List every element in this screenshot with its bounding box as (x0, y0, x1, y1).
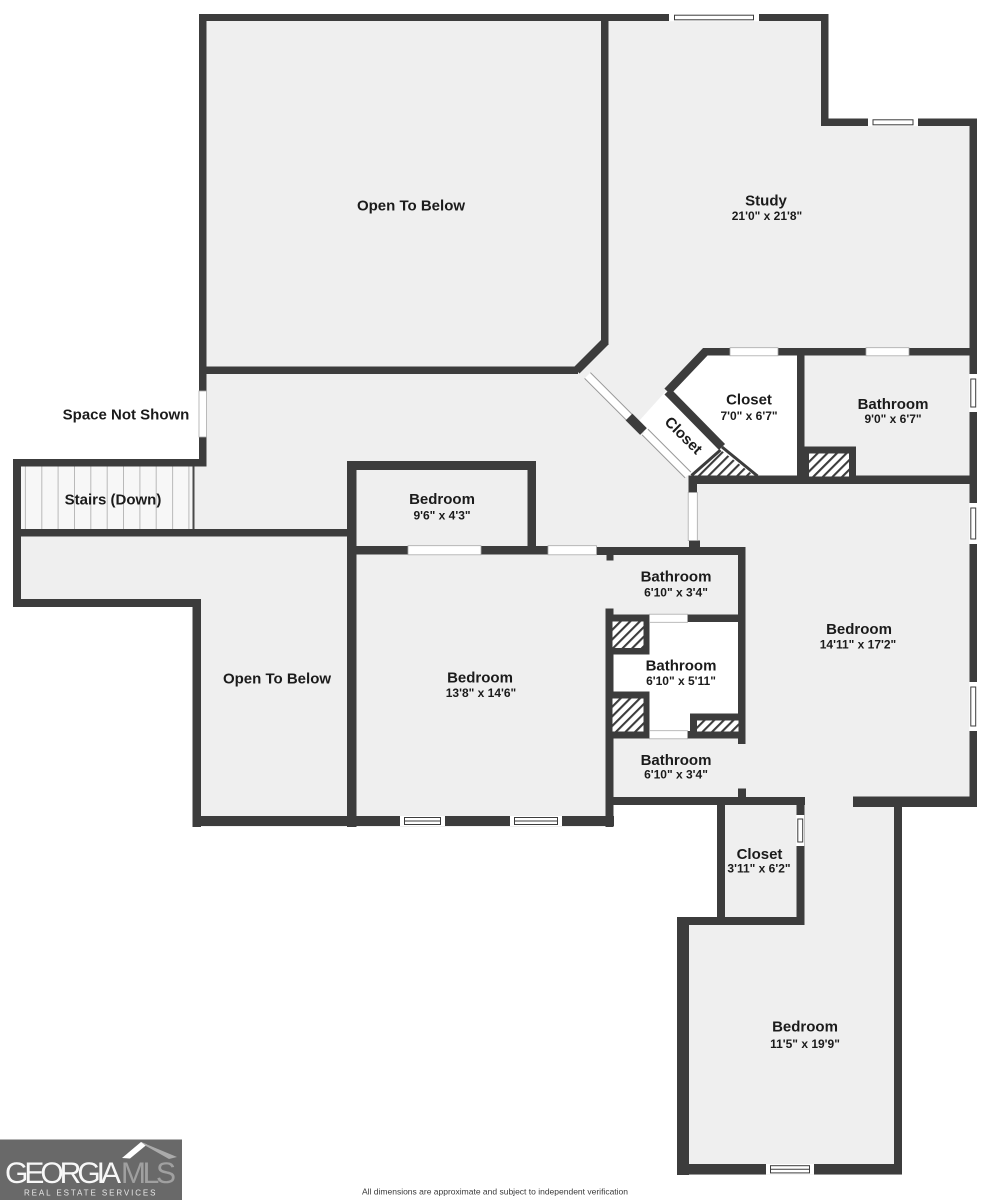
svg-text:Bathroom: Bathroom (646, 657, 717, 674)
svg-text:Bedroom: Bedroom (826, 621, 892, 638)
svg-text:Bathroom: Bathroom (641, 568, 712, 585)
svg-text:Closet: Closet (726, 391, 772, 408)
svg-text:14'11" x 17'2": 14'11" x 17'2" (820, 637, 896, 651)
svg-text:All dimensions are approximate: All dimensions are approximate and subje… (362, 1187, 628, 1197)
svg-text:Bathroom: Bathroom (641, 752, 712, 769)
svg-text:9'0" x 6'7": 9'0" x 6'7" (864, 412, 921, 426)
svg-text:Open To Below: Open To Below (357, 197, 465, 214)
svg-text:9'6" x 4'3": 9'6" x 4'3" (413, 508, 470, 522)
svg-text:Bathroom: Bathroom (858, 396, 929, 413)
svg-text:Bedroom: Bedroom (772, 1018, 838, 1035)
svg-text:21'0" x 21'8": 21'0" x 21'8" (732, 209, 802, 223)
svg-text:6'10" x 3'4": 6'10" x 3'4" (644, 767, 708, 781)
svg-text:GEORGIA: GEORGIA (5, 1157, 121, 1190)
svg-text:3'11" x 6'2": 3'11" x 6'2" (727, 861, 790, 875)
svg-text:11'5" x 19'9": 11'5" x 19'9" (770, 1037, 840, 1051)
svg-text:7'0" x 6'7": 7'0" x 6'7" (720, 409, 777, 423)
svg-text:Bedroom: Bedroom (447, 669, 513, 686)
svg-text:13'8" x 14'6": 13'8" x 14'6" (446, 686, 516, 700)
svg-text:Stairs (Down): Stairs (Down) (65, 491, 162, 508)
svg-text:Space Not Shown: Space Not Shown (63, 406, 190, 423)
svg-text:Bedroom: Bedroom (409, 491, 475, 508)
svg-text:MLS: MLS (121, 1157, 176, 1190)
svg-text:Study: Study (745, 192, 787, 209)
svg-text:Closet: Closet (737, 846, 783, 863)
svg-text:Open To Below: Open To Below (223, 670, 331, 687)
svg-text:6'10" x 5'11": 6'10" x 5'11" (646, 674, 716, 688)
svg-text:6'10" x 3'4": 6'10" x 3'4" (644, 585, 708, 599)
svg-text:REAL ESTATE SERVICES: REAL ESTATE SERVICES (24, 1189, 157, 1198)
